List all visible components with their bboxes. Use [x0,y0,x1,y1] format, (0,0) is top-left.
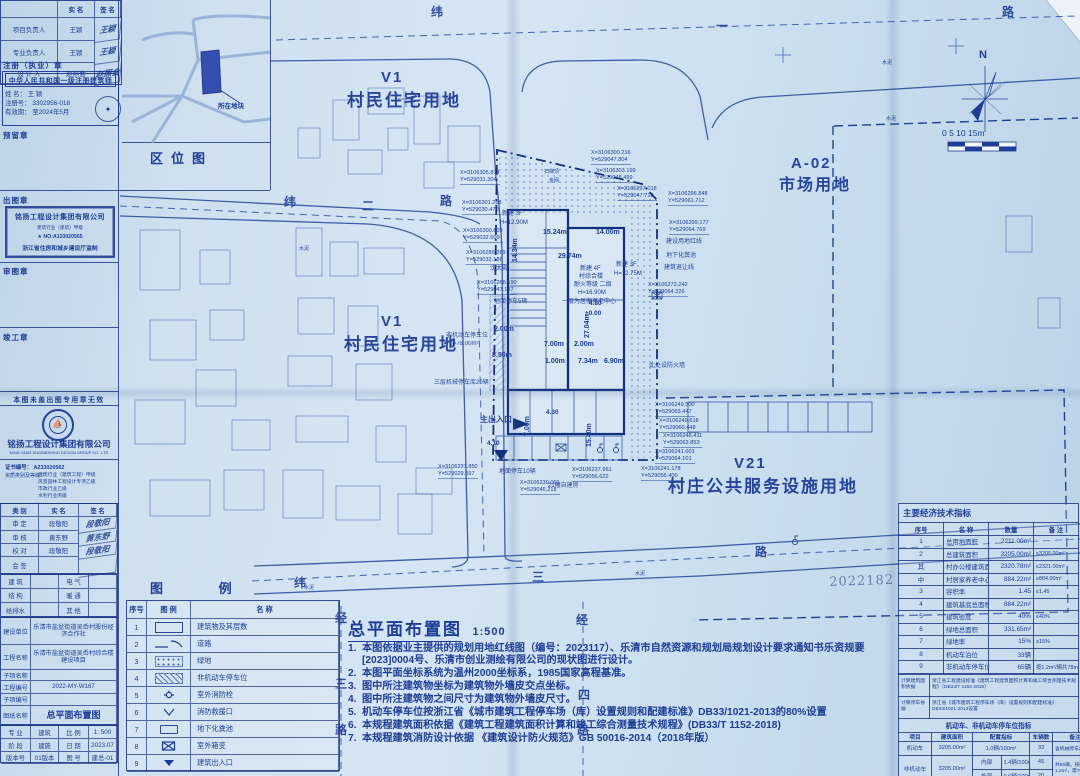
sheet-meta-cell: 2023.07 [89,739,117,752]
stamp-footer: 浙江省住房和城乡建设厅监制 [22,243,97,252]
indicator-header: 数量 [989,523,1034,536]
sign-role: 项目负责人 [1,18,58,41]
discipline-cell: 电 气 [59,575,89,589]
location-map: 所在地块 [122,0,270,143]
cert-grade-line: 建筑行业（建筑工程）甲级 [38,472,96,479]
company-logo-icon: ⛵ [42,409,74,441]
scalebar-text-label: 0 5 10 15m [942,129,985,138]
coordinate-callout: X=3106237.961Y=529056.622 [572,467,612,482]
ann-label: 地面停车5辆 [494,299,527,305]
project-label: 建设单位 [1,618,31,645]
zone-label: 村民住宅用地 [344,336,458,353]
ann-label: 水泥 [299,247,309,252]
review-header: 类 别 [1,504,39,517]
note-item: 3.图中所注建筑物坐标为建筑物外墙皮交点坐标。 [348,681,904,693]
project-info-table: 建设单位乐清市盐盆街道吴岙村股份经济合作社工程名称乐清市盐盆街道吴岙村综合楼建设… [0,617,118,725]
legend-symbol-rescue-icon [147,704,191,721]
basis-row: 计算停车依据浙江省《城市建筑工程停车场（库）设置规则和配建标准》DB33/102… [899,696,1079,718]
review-name [39,557,79,575]
project-value: 总平面布置图 [31,706,117,726]
ann-label: S=78.00m² [449,341,479,347]
project-value: 乐清市盐盆街道吴岙村综合楼建设项目 [31,645,117,670]
reserved-stamp-label: 预留章 [3,130,29,141]
zone-label: 市场用地 [779,178,851,194]
legend-symbol-green-icon [147,653,191,670]
indicator-header: 序号 [899,523,944,536]
roadchar-label: 路 [440,195,452,207]
discipline-cell [31,575,59,589]
shentu-stamp-label: 审图章 [3,266,29,277]
sheet-meta-cell: 比 例 [59,726,89,739]
project-value: 2022-MY-W167 [31,681,117,694]
note-item: 5.机动车停车位按浙江省《城市建筑工程停车场（库）设置规则和配建标准》DB33/… [348,707,904,719]
sheet-meta-cell: 建施 [31,739,59,752]
ann-label: 地下化粪池 [666,253,696,259]
location-map-caption: 区位图 [150,148,213,167]
economic-indicators: 主要经济技术指标 序号名 称数量备 注1总用地面积2211.00m²2总建筑面积… [898,503,1079,776]
jungong-stamp-label: 竣工章 [3,332,29,343]
legend-no: 8 [127,738,147,755]
zone-label: V1 [381,314,403,329]
indicator-row: 2总建筑面积3205.00m²≤3205.00m² [899,548,1079,561]
parking-header-row: 项目建筑面积配置指标车辆数备注 [899,732,1080,741]
project-value [31,694,117,706]
discipline-cell [31,603,59,618]
blabel-label: 耐火等级 二级 [574,282,612,288]
legend-header: 名 称 [191,601,339,619]
legend-name: 消防救援口 [191,704,339,721]
legend-name: 建筑出入口 [191,755,339,772]
company-name-cn: 铭扬工程设计集团有限公司 [0,438,118,450]
sign-header: 实 名 [58,1,95,18]
roadchar-label: 二 [362,200,374,212]
drawing-title: 总平面布置图 [348,615,462,642]
roadchar-label: 纬 [431,6,443,18]
indicator-row: 1总用地面积2211.00m² [899,536,1079,549]
blabel-label: 村综合楼 [579,274,603,280]
discipline-cell [89,589,117,603]
calc-basis-table: 计算建筑面积依据浙江省工程建设标准《建筑工程建筑面积计算和竣工综合测量技术规程》… [898,674,1079,719]
chutu-stamp-label: 出图章 [3,195,29,206]
coordinate-callout: X=3106286.369Y=529032.186 [466,250,506,265]
reg-stamp-title: 中华人民共和国一级注册建筑师 [5,73,116,87]
sign-name: 王颖 [58,18,95,41]
cert-grade-line: 水利行业丙级 [38,493,96,500]
discipline-cell: 建 筑 [1,575,31,589]
project-label: 图纸名称 [1,706,31,726]
legend-symbol-hydrant-icon [147,687,191,704]
ann-label: 金网 [549,179,559,184]
review-signature-table: 类 别实 名签 名审 定段敬阳段敬阳审 核黄东野黄东野校 对段敬阳段敬阳会 签 [0,503,118,574]
zone-label: 村庄公共服务设施用地 [668,478,858,495]
legend-no: 3 [127,653,147,670]
zone-label: A-02 [791,156,832,171]
coordinate-callout: X=3106300.216Y=529047.804 [591,150,631,165]
ann-label: 建筑退让线 [664,265,694,271]
review-name: 段敬阳 [39,517,79,531]
indicators-title: 主要经济技术指标 [898,503,1079,522]
legend-no: 5 [127,687,147,704]
roadchar-label: 纬 [284,196,296,208]
legend-symbol-transformer-icon [147,738,191,755]
chutu-stamp: 铭扬工程设计集团有限公司 建筑行业（建筑）甲级 ★ NO:A133020565 … [5,206,115,258]
notes-block: 总平面布置图 1:500 1.本图依据业主提供的规划用地红线图（编号：20231… [348,615,904,745]
legend-name: 绿地 [191,653,339,670]
indicator-row: 其村办公楼建筑面积2320.78m²≤2321.00m² [899,561,1079,574]
legend-no: 7 [127,721,147,738]
legend-name: 道路 [191,636,339,653]
legend-name: 地下化粪池 [191,721,339,738]
compass-n-label: N [979,50,987,61]
roadchar-label: 路 [755,546,767,558]
project-label: 子项名称 [1,670,31,681]
ann-label: 地面停车10辆 [499,469,536,475]
discipline-cell: 暖 通 [59,589,89,603]
sheet-meta-cell: 阶 段 [1,739,31,752]
note-item: 2.本图平面坐标系统为温州2000坐标系，1985国家高程基准。 [348,668,904,680]
project-label: 子项编号 [1,694,31,706]
indicator-row: 9非机动车停车位65辆按1.2m²/辆共78m² [899,661,1079,674]
coordinate-callout: X=3106296.848Y=529061.712 [668,191,708,206]
coordinate-callout: X=3106273.242Y=529064.326 [648,282,688,297]
sheet-meta-cell: 日 期 [59,739,89,752]
indicator-row: 8机动车泊位33辆 [899,648,1079,661]
indicator-header: 备 注 [1034,523,1079,536]
sheet-meta-table: 专 业建筑比 例1: 500阶 段建施日 期2023.07版本号01版本图 号建… [0,725,118,763]
legend-symbol-entrance-icon [147,755,191,772]
dim-label: 4.10 [487,441,500,448]
parking-table-title: 机动车、非机动车停车位指标 [898,719,1079,732]
indicator-row: 5建筑密度40%≤40% [899,611,1079,624]
review-role: 会 签 [1,557,39,575]
review-name: 段敬阳 [39,544,79,557]
parking-table: 项目建筑面积配置指标车辆数备注机动车3205.00m²1.0辆/100m²33含… [898,732,1080,776]
parcel-pointer-label: 所在地块 [218,100,244,110]
coordinate-callout: X=3106249.500Y=529063.447 [655,402,695,417]
roadchar-label: 一 [716,20,728,32]
sign-header [1,1,58,18]
ann-label: 水泥 [304,586,314,591]
dim-label: 7.00m [544,341,564,348]
coordinate-callout: X=3106237.850Y=529029.097 [438,464,478,479]
coordinate-callout: X=3106248.411Y=529063.853 [663,433,702,448]
coordinate-callout: X=3106300.639Y=529032.509 [463,228,503,243]
legend-symbol-bike-icon [147,670,191,687]
legend-no: 1 [127,619,147,636]
blabel-label: 一层为居家养老中心 [562,299,616,305]
coordinate-callout: X=3106268.190Y=529047.187 [477,280,517,295]
sheet-meta-cell: 图 号 [59,752,89,764]
reg-stamp-name: 姓 名： 王 颖 [5,89,116,98]
legend-symbol-road-icon [147,636,191,653]
legend-header: 图 例 [147,601,191,619]
legend-name: 非机动车停车位 [191,670,339,687]
dim-label: 1.00m [545,358,565,365]
dim-label: 14.34m [512,238,519,262]
note-item: 4.图中所注建筑物之间尺寸为建筑物外墙皮尺寸。 [348,694,904,706]
coordinate-callout: X=3106305.834Y=529031.304 [460,170,500,185]
zone-label: V1 [381,70,403,85]
legend-no: 9 [127,755,147,772]
legend-no: 2 [127,636,147,653]
legend-table: 序号图 例名 称1建筑物及其层数2道路3绿地4非机动车停车位5室外消防栓6消防救… [126,600,340,771]
architect-seal-icon: ✦ [95,96,121,122]
reg-stamp-label: 注册（执业）章 [3,60,63,71]
indicator-row: 6绿地总面积331.65m² [899,623,1079,636]
discipline-table: 建 筑电 气结 构暖 通给排水其 他 [0,574,118,617]
indicator-row: 7绿地率15%≥15% [899,636,1079,649]
blabel-label: 新建 3F [616,262,637,268]
ann-label: 三层机械停车库20辆 [434,380,489,386]
ann-label: 沈太殿 [490,266,508,272]
note-item: 1.本图依据业主提供的规划用地红线图（编号：2023117）、乐清市自然资源和规… [348,643,904,667]
legend-title: 图 例 [150,578,258,597]
dim-label: 2.00m [494,326,514,333]
drawing-scale: 1:500 [472,626,505,638]
zone-label: 村民住宅用地 [347,92,461,109]
roadchar-label: 三 [532,571,544,583]
sheet-meta-cell: 专 业 [1,726,31,739]
coordinate-callout: X=3106303.199Y=529048.499 [596,168,636,183]
sign-header: 签 名 [95,1,121,18]
dim-label: 14.00m [596,229,620,236]
roadchar-label: 路 [1002,6,1014,18]
review-role: 审 定 [1,517,39,531]
dim-label: 15.40m [586,423,593,447]
coordinate-callout: X=3106230.001Y=529046.218 [520,480,560,495]
project-value: 乐清市盐盆街道吴岙村股份经济合作社 [31,618,117,645]
sheet-meta-cell: 01版本 [31,752,59,764]
blabel-label: H=12.90M [500,220,528,226]
discipline-cell [31,589,59,603]
sheet-meta-cell: 建筑 [31,726,59,739]
indicators-table: 序号名 称数量备 注1总用地面积2211.00m²2总建筑面积3205.00m²… [898,522,1079,674]
dim-label: 29.74m [558,253,582,260]
dim-label: 2.00m [574,341,594,348]
note-item: 6.本规程建筑面积依据《建筑工程建筑面积计算和竣工综合测量技术规程》(DB33/… [348,720,904,732]
ann-label: 水泥 [886,117,896,122]
registration-stamp: 中华人民共和国一级注册建筑师 姓 名： 王 颖 注册号： 3302956-018… [2,71,119,126]
parking-motor-row: 机动车3205.00m²1.0辆/100m²33含机械停车20辆 [899,741,1080,755]
coordinate-callout: X=3106297.018Y=529047.718 [617,186,657,201]
cert-grades-list: 建筑行业（建筑工程）甲级风景园林工程设计专项乙级市政行业乙级水利行业丙级 [38,472,96,500]
dim-label: 27.04m [584,314,591,338]
legend-header: 序号 [127,601,147,619]
dim-label: 15.24m [543,229,567,236]
stamp-no: ★ NO:A133020565 [37,234,82,240]
no-stamp-invalid-note: 本图未盖出图专用章无效 [0,394,118,404]
discipline-cell: 结 构 [1,589,31,603]
sheet-meta-cell: 建总-01 [89,752,117,764]
dim-label: 4.30 [546,410,559,417]
cert-grade-line: 风景园林工程设计专项乙级 [38,479,96,486]
dim-label: 6.90m [604,358,624,365]
sign-name: 王颖 [58,41,95,63]
sheet-meta-cell: 版本号 [1,752,31,764]
legend-no: 6 [127,704,147,721]
legend-name: 建筑物及其层数 [191,619,339,636]
sheet-meta-cell: 1: 500 [89,726,117,739]
notes-list: 1.本图依据业主提供的规划用地红线图（编号：2023117）、乐清市自然资源和规… [348,643,904,745]
coordinate-callout: X=3106241.178Y=529056.400 [641,466,681,481]
dim-label: 7.34m [578,358,598,365]
company-name-en: MING YANG ENGINEERING DESIGN GROUP CO. ,… [0,450,118,455]
discipline-cell: 其 他 [59,603,89,618]
blabel-label: 新建 4F [580,266,601,272]
zone-label: V21 [734,456,767,471]
blabel-label: 新建 3F [502,211,523,217]
ann-label: 石梯顶 [544,170,559,175]
ann-label: 建设用地红线 [666,239,702,245]
review-name: 黄东野 [39,531,79,544]
indicator-header: 名 称 [944,523,989,536]
ann-label: 此处设防火墙 [649,363,685,369]
project-label: 工程名称 [1,645,31,670]
stamp-grade: 建筑行业（建筑）甲级 [37,225,83,231]
review-role: 校 对 [1,544,39,557]
ann-label: 水泥 [635,572,645,577]
note-item: 7.本规程建筑消防设计依据 《建筑设计防火规范》GB 50016-2014（20… [348,733,904,745]
review-role: 审 核 [1,531,39,544]
indicator-row: 3容积率1.45≤1.45 [899,586,1079,599]
dim-label: 7.00m [524,416,531,436]
dim-label: 8.90m [492,352,512,359]
review-header: 实 名 [39,504,79,517]
coordinate-callout: X=3106241.601Y=529064.101 [655,449,695,464]
legend-name: 室外箱变 [191,738,339,755]
ann-label: 非机动车停车位 [446,333,488,339]
cert-no: 证书编号： A233020562 [5,463,64,471]
ann-label: 主出入口 [480,416,512,424]
blabel-label: H=12.75M [614,271,642,277]
cert-grade-line: 市政行业乙级 [38,486,96,493]
indicator-row: 中村居家养老中心建筑面积884.22m²≥884.00m² [899,573,1079,586]
coordinate-callout: X=3106301.268Y=529030.470 [462,200,502,215]
legend-symbol-building-icon [147,619,191,636]
discipline-cell [89,603,117,618]
ann-label: 水泥 [882,61,892,66]
coordinate-callout: X=3106249.618Y=529060.448 [659,418,699,433]
legend-no: 4 [127,670,147,687]
legend-symbol-septic-icon [147,721,191,738]
site-plan-sheet: V1村民住宅用地A-02市场用地V1村民住宅用地V21村庄公共服务设施用地纬一路… [0,0,1080,776]
coordinate-callout: X=3106299.177Y=529064.769 [669,220,709,235]
blabel-label: H=16.90M [578,290,606,296]
stamp-company: 铭扬工程设计集团有限公司 [15,212,105,222]
legend-name: 室外消防栓 [191,687,339,704]
parking-nonmotor-row: 非机动车3205.00m²内部1.4辆/100m²45共65辆，按每辆1.2m²… [899,755,1080,769]
discipline-cell [89,575,117,589]
discipline-cell: 给排水 [1,603,31,618]
basis-row: 计算建筑面积依据浙江省工程建设标准《建筑工程建筑面积计算和竣工综合测量技术规程》… [899,674,1079,696]
indicator-row: 4建筑基底总面积884.22m² [899,598,1079,611]
handstamp-label: 2022182 [829,574,894,589]
project-label: 工程编号 [1,681,31,694]
project-value [31,670,117,681]
